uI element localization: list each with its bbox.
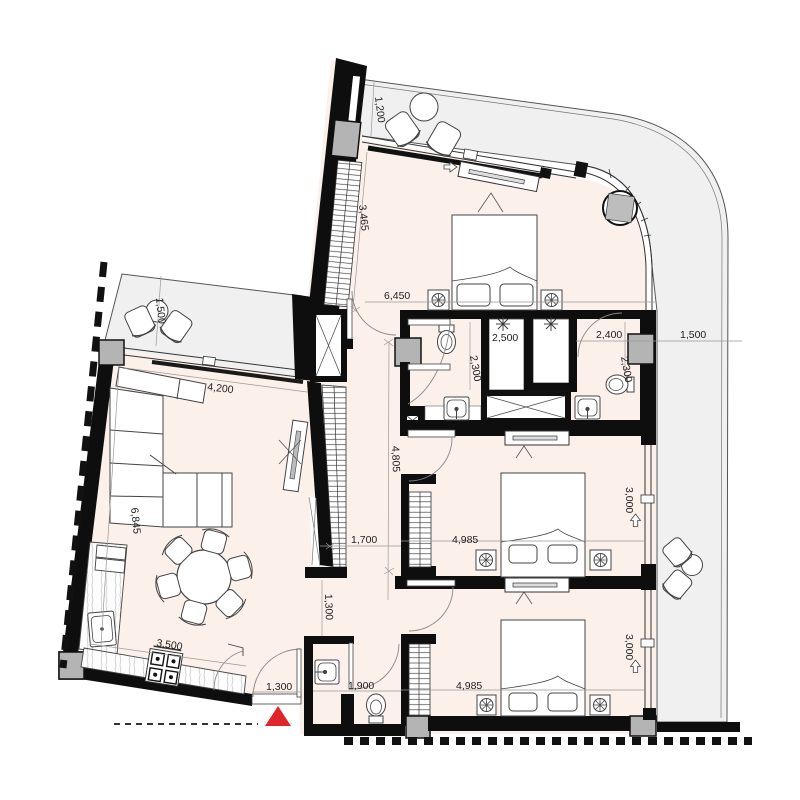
svg-text:3,000: 3,000 [623, 487, 635, 513]
svg-text:1,300: 1,300 [266, 681, 292, 693]
svg-text:2,400: 2,400 [596, 329, 622, 341]
svg-text:4,805: 4,805 [389, 446, 402, 473]
svg-text:4,985: 4,985 [452, 534, 478, 546]
svg-text:3,000: 3,000 [623, 634, 635, 660]
svg-text:6,450: 6,450 [384, 290, 410, 302]
svg-text:1,500: 1,500 [680, 329, 706, 341]
svg-text:1,300: 1,300 [322, 594, 335, 621]
svg-text:4,985: 4,985 [456, 680, 482, 692]
svg-text:1,900: 1,900 [348, 680, 374, 692]
svg-text:1,700: 1,700 [351, 534, 377, 546]
svg-text:2,500: 2,500 [492, 332, 518, 344]
